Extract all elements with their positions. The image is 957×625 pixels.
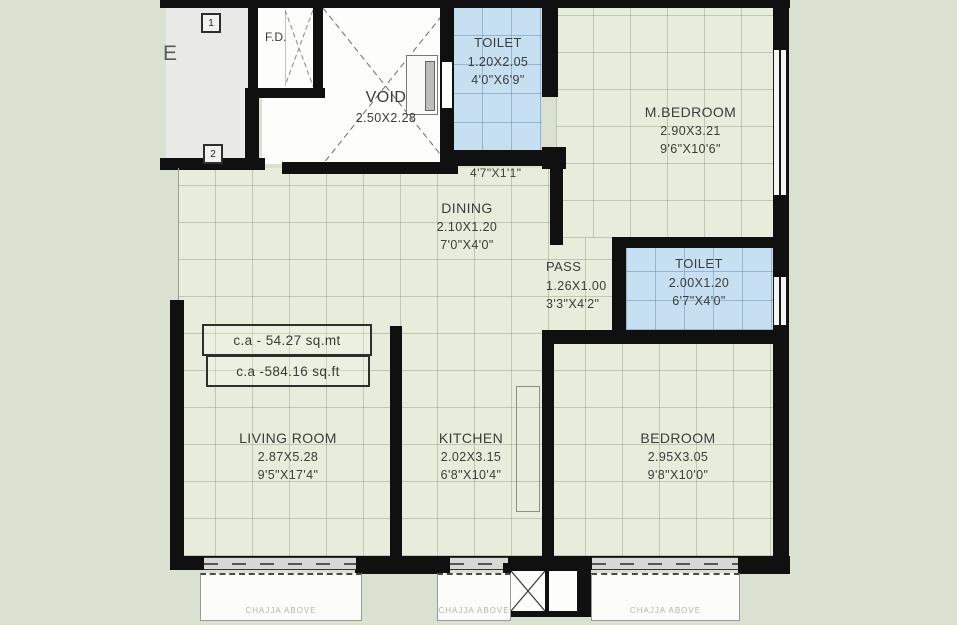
wall-living-left — [170, 300, 184, 562]
chajja-kitchen: CHAJJA ABOVE — [437, 573, 511, 621]
carpet-area-sqft: c.a -584.16 sq.ft — [206, 355, 370, 387]
duct-side-box — [549, 571, 577, 611]
m-bedroom-label: M.BEDROOM 2.90X3.21 9'6"X10'6" — [608, 102, 773, 159]
wall-bedroom-top — [542, 330, 775, 344]
room-dim-metric: 2.87X5.28 — [212, 448, 364, 466]
void-floor-extension — [262, 98, 323, 164]
mbedroom-window — [773, 50, 787, 195]
wall-toilet-top-bottom — [440, 150, 546, 166]
wall-void-bottom — [282, 162, 458, 174]
duct-box — [511, 571, 545, 611]
living-room-window — [204, 557, 356, 570]
floor-plan: CHAJJA ABOVE CHAJJA ABOVE CHAJJA ABOVE c… — [0, 0, 957, 625]
room-dim-metric: 2.50X2.28 — [325, 109, 447, 127]
wall-pass-left — [550, 150, 563, 245]
wall-living-kitchen-divider — [390, 326, 402, 566]
kitchen-platform — [516, 386, 540, 512]
room-dim-imperial: 3'3"X4'2" — [546, 295, 630, 313]
room-name: LIVING ROOM — [212, 428, 364, 448]
room-dim-imperial: 9'5"X17'4" — [212, 466, 364, 484]
chajja-label: CHAJJA ABOVE — [245, 606, 316, 615]
toilet-right-label: TOILET 2.00X1.20 6'7"X4'0" — [638, 255, 760, 310]
room-dim-metric: 1.20X2.05 — [450, 53, 546, 71]
duct-cross-icon — [511, 571, 545, 611]
room-name: PASS — [546, 258, 630, 277]
chajja-label: CHAJJA ABOVE — [630, 606, 701, 615]
wall-mbed-bottom — [612, 237, 775, 248]
fd-label: F.D. — [265, 30, 286, 44]
void-label: VOID 2.50X2.28 — [325, 86, 447, 127]
bedroom-window — [592, 557, 738, 570]
room-dim-imperial: 6'7"X4'0" — [638, 292, 760, 310]
room-name: BEDROOM — [615, 428, 741, 448]
wall-bottom-mid-pier — [355, 556, 450, 574]
room-name: M.BEDROOM — [608, 102, 773, 122]
wall-below-fd — [245, 88, 325, 98]
room-name: KITCHEN — [423, 428, 519, 448]
room-dim-metric: 2.10X1.20 — [423, 218, 511, 236]
toilet-top-label: TOILET 1.20X2.05 4'0"X6'9" — [450, 34, 546, 89]
wall-top — [160, 0, 790, 8]
room-dim-metric: 2.90X3.21 — [608, 122, 773, 140]
edge-letter: E — [163, 42, 178, 66]
chajja-bedroom: CHAJJA ABOVE — [591, 573, 740, 621]
room-dim-imperial: 9'8"X10'0" — [615, 466, 741, 484]
pass-label: PASS 1.26X1.00 3'3"X4'2" — [546, 258, 630, 313]
kitchen-label: KITCHEN 2.02X3.15 6'8"X10'4" — [423, 428, 519, 485]
marker-1: 1 — [201, 13, 221, 33]
marker-2-label: 2 — [210, 149, 216, 160]
carpet-area-sqft-label: c.a -584.16 sq.ft — [236, 364, 340, 379]
kitchen-window — [450, 557, 508, 570]
chajja-label: CHAJJA ABOVE — [438, 606, 509, 615]
room-name: TOILET — [450, 34, 546, 53]
room-name: TOILET — [638, 255, 760, 274]
wall-bottom-right-pier — [738, 556, 790, 574]
entry-floor-edge — [178, 168, 179, 300]
room-name: DINING — [423, 198, 511, 218]
room-dim-metric: 1.26X1.00 — [546, 277, 630, 295]
room-dim-imperial: 6'8"X10'4" — [423, 466, 519, 484]
wall-fd-void-divider — [313, 8, 323, 88]
carpet-area-sqmt: c.a - 54.27 sq.mt — [202, 324, 372, 356]
dining-label: DINING 2.10X1.20 7'0"X4'0" — [423, 198, 511, 255]
marker-2: 2 — [203, 144, 223, 164]
fd-cross-lines — [285, 10, 313, 86]
marker-1-label: 1 — [208, 18, 214, 29]
room-dim-imperial: 9'6"X10'6" — [608, 140, 773, 158]
wall-corridor-right — [248, 8, 258, 96]
wall-kitchen-bedroom-divider — [542, 330, 554, 566]
toilet-right-window — [773, 277, 787, 325]
carpet-area-sqmt-label: c.a - 54.27 sq.mt — [233, 333, 340, 348]
room-name: VOID — [325, 86, 447, 109]
room-dim-metric: 2.02X3.15 — [423, 448, 519, 466]
room-dim-imperial: 4'0"X6'9" — [450, 71, 546, 89]
bedroom-label: BEDROOM 2.95X3.05 9'8"X10'0" — [615, 428, 741, 485]
chajja-living: CHAJJA ABOVE — [200, 573, 362, 621]
living-room-label: LIVING ROOM 2.87X5.28 9'5"X17'4" — [212, 428, 364, 485]
room-dim-imperial: 7'0"X4'0" — [423, 236, 511, 254]
room-dim-metric: 2.00X1.20 — [638, 274, 760, 292]
room-dim-metric: 2.95X3.05 — [615, 448, 741, 466]
passage-dim-label: 4'7"X1'1" — [470, 166, 521, 180]
